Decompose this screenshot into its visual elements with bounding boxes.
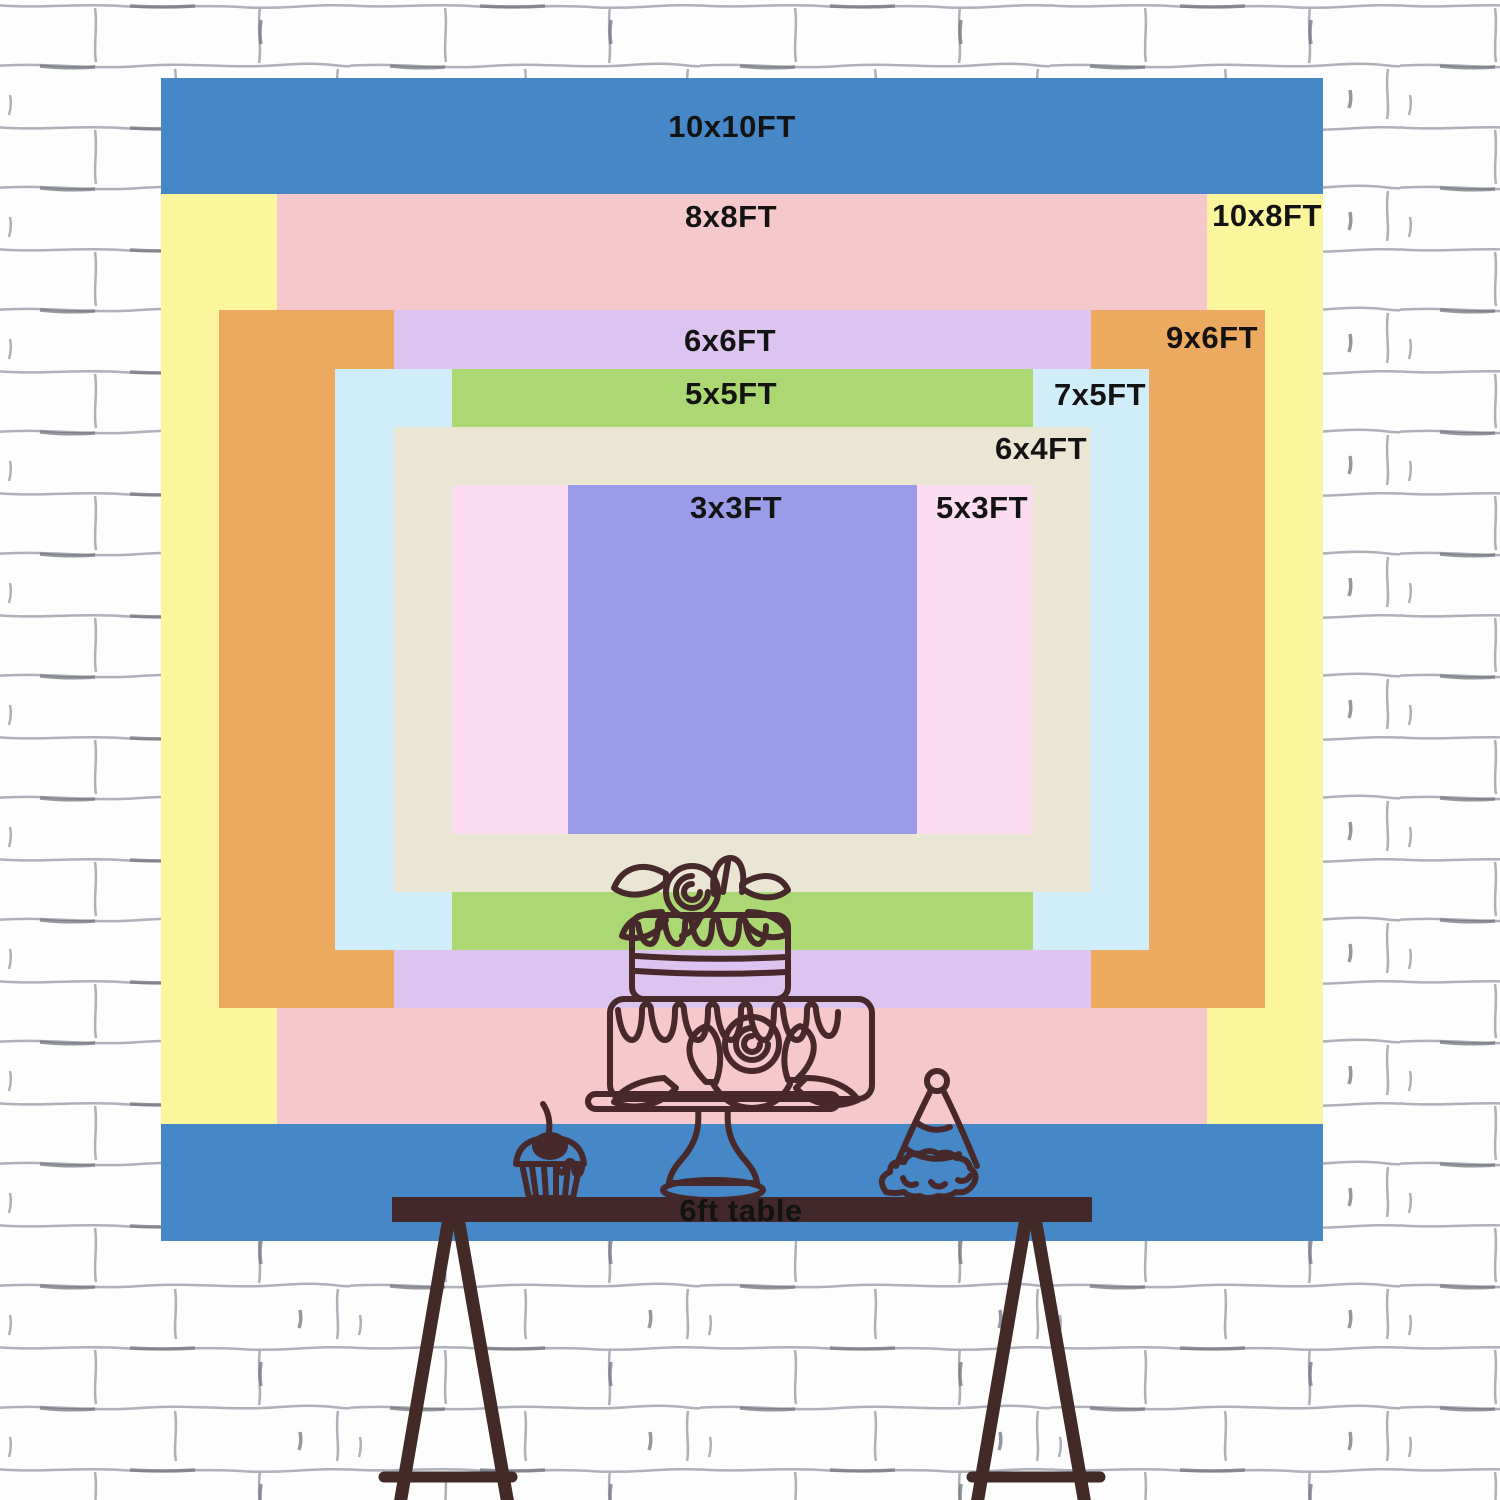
cake-stand-stem bbox=[669, 1109, 757, 1183]
backdrop-size-chart-scene: 10x10FT 8x8FT 10x8FT 6x6FT 9x6FT 5x5FT 7… bbox=[0, 0, 1500, 1500]
table-label: 6ft table bbox=[679, 1193, 802, 1229]
cake-top-rose-spiral bbox=[676, 876, 708, 908]
cupcake-cherry-stem bbox=[543, 1104, 549, 1132]
table-left-leg bbox=[399, 1218, 509, 1500]
cake-illustration bbox=[516, 858, 977, 1200]
cake-top-right-leaf bbox=[742, 876, 788, 897]
cake-front-rose-spiral bbox=[736, 1028, 768, 1060]
cake-top-left-leaf bbox=[614, 867, 666, 895]
doodle-layer bbox=[0, 0, 1500, 1500]
table-legs bbox=[384, 1218, 1100, 1500]
cake-top-tier-lines bbox=[636, 956, 786, 974]
table-right-leg bbox=[976, 1218, 1086, 1500]
